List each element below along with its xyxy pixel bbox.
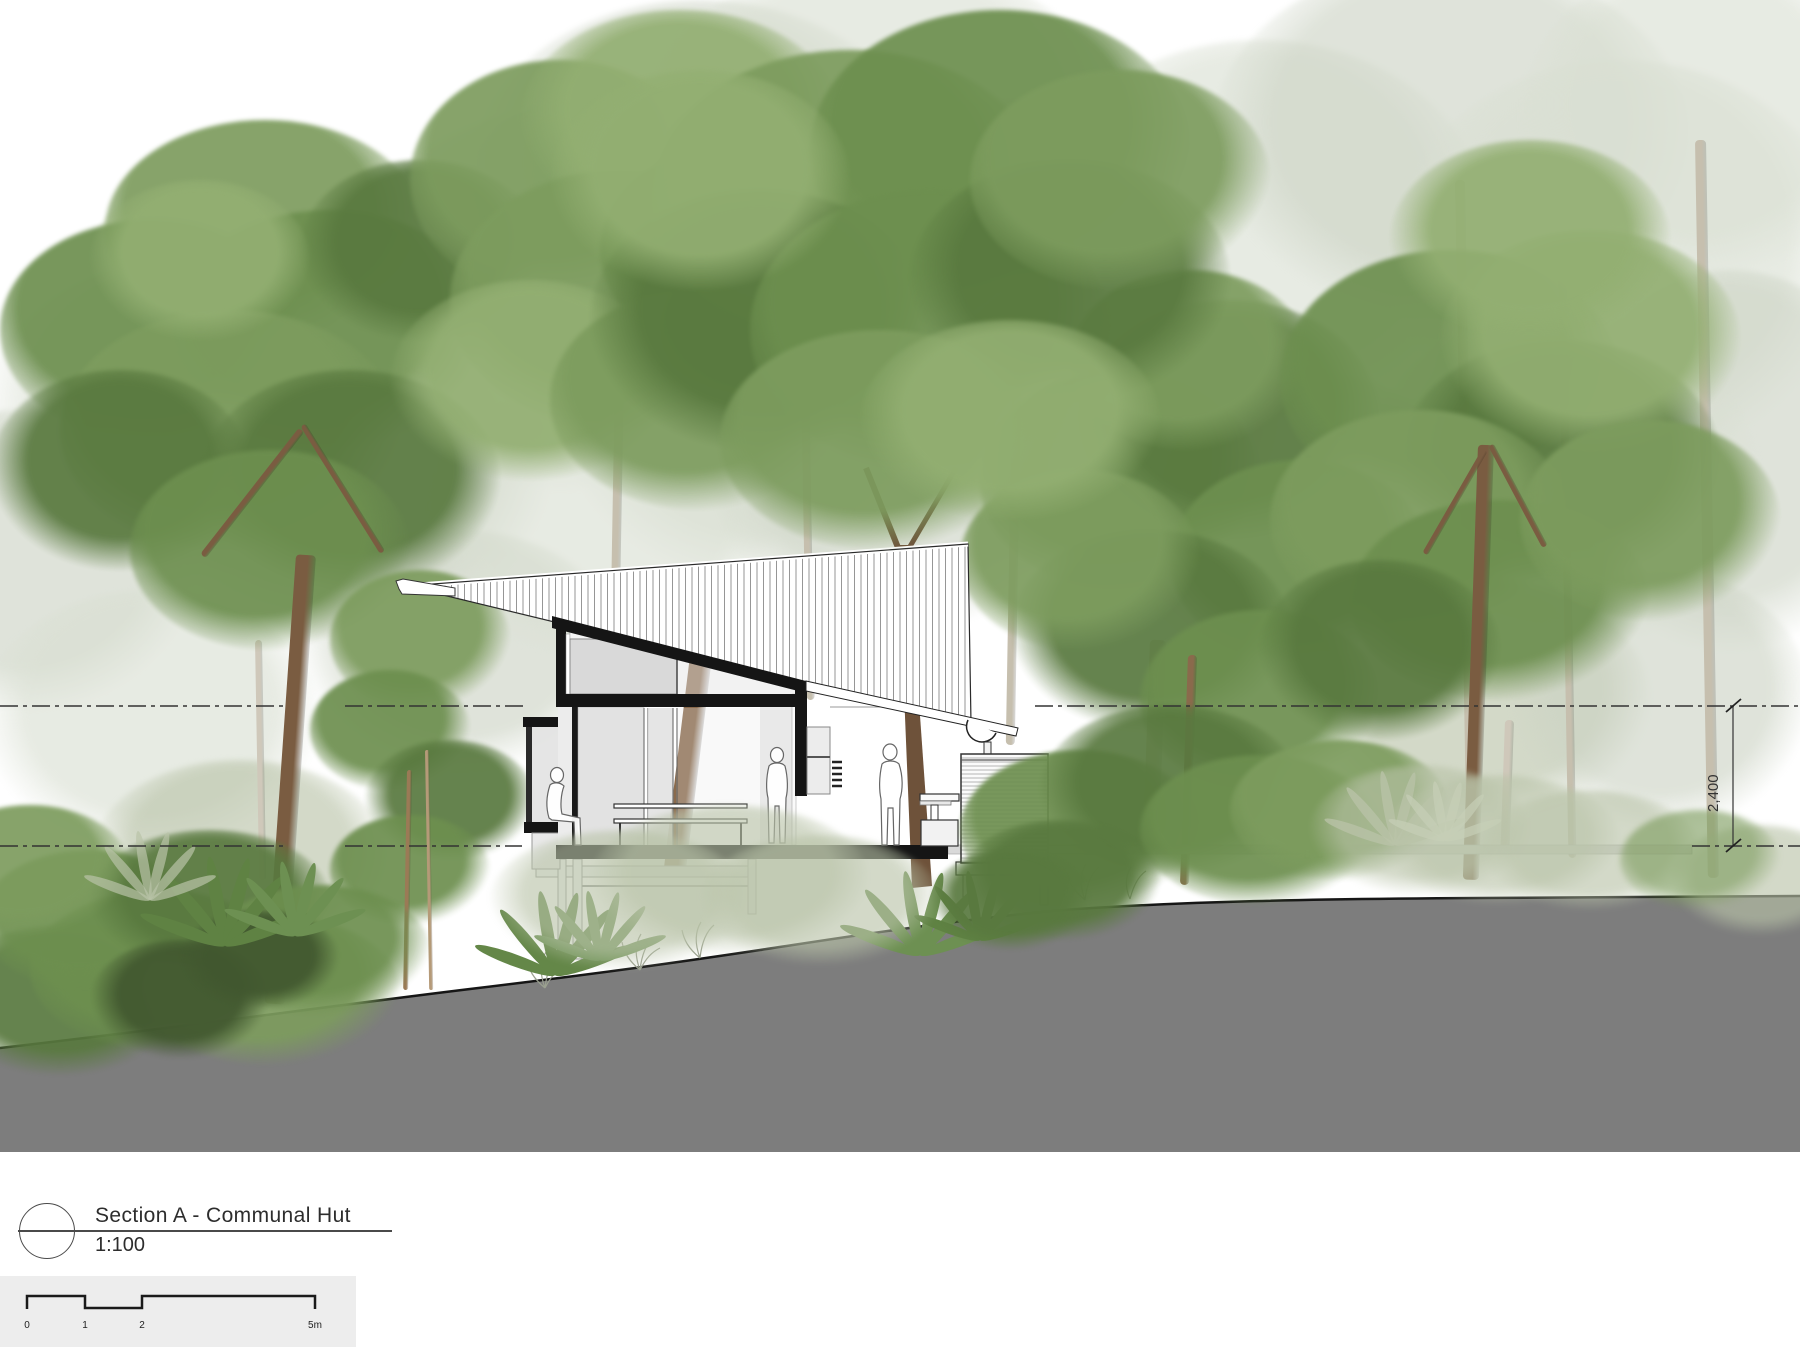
foliage-blob xyxy=(590,190,930,450)
foliage-blob xyxy=(470,0,930,360)
foliage-blob xyxy=(970,70,1270,290)
floor-level-band xyxy=(948,845,1692,854)
roof xyxy=(396,544,1018,757)
section-marker-circle xyxy=(19,1203,75,1259)
palm-frond xyxy=(913,911,982,944)
eave-gutter xyxy=(967,720,996,742)
palm-frond xyxy=(1430,780,1449,841)
palm-frond xyxy=(918,920,1002,960)
scale-bar: 0 1 2 5m xyxy=(20,1288,350,1338)
palm-frond xyxy=(148,871,217,904)
datum-lines xyxy=(0,706,1800,846)
palm-frond xyxy=(583,890,605,961)
palm-frond xyxy=(277,860,301,936)
palm-frond xyxy=(1377,770,1400,846)
foliage-blob xyxy=(0,850,200,990)
roof-eave xyxy=(806,681,1018,736)
glazed-wall xyxy=(558,694,796,846)
palm-frond xyxy=(551,903,604,963)
person-seated xyxy=(547,768,581,846)
foliage-blob xyxy=(90,830,330,970)
tree-trunk xyxy=(1180,655,1197,885)
person-standing-veranda xyxy=(880,744,903,845)
foliage-blob xyxy=(310,670,470,790)
foliage-blob xyxy=(1260,560,1500,740)
foliage-blob xyxy=(1380,775,1620,905)
foliage-blob xyxy=(710,330,1090,630)
foliage-blob xyxy=(330,570,510,710)
foliage-blob xyxy=(910,160,1230,400)
palm-frond xyxy=(1441,781,1465,841)
palm-frond xyxy=(899,870,926,956)
foliage-blob xyxy=(420,380,780,660)
foliage-blob xyxy=(1510,570,1800,830)
foliage-blob xyxy=(450,170,790,430)
ground-line xyxy=(0,896,1800,1048)
dimension-2400: 2,400 xyxy=(1705,699,1741,852)
background-foliage xyxy=(0,0,1800,1347)
palm-frond xyxy=(138,908,227,951)
foliage-blob xyxy=(90,940,270,1060)
scale-bar-label-1: 1 xyxy=(82,1320,88,1331)
floor-slab xyxy=(556,845,948,859)
foliage-blob xyxy=(1040,705,1300,875)
foliage-blob xyxy=(1280,250,1620,510)
palm-frond xyxy=(931,883,984,943)
palm-frond xyxy=(861,886,925,959)
foliage-blob xyxy=(860,320,1160,520)
palm-frond xyxy=(963,870,985,941)
palm-frond xyxy=(496,906,560,979)
palm-frond xyxy=(1391,784,1447,848)
palm-frond xyxy=(145,831,173,901)
palm-frond xyxy=(290,861,320,936)
palm-frond xyxy=(533,931,602,964)
foliage-blob xyxy=(1140,610,1380,790)
scale-bar-label-2: 2 xyxy=(139,1320,145,1331)
foliage-blob xyxy=(140,915,400,1065)
foliage-blob xyxy=(960,750,1200,910)
foliage-blob xyxy=(1440,230,1740,450)
person-walking-faded xyxy=(1305,799,1322,858)
foliage-blob xyxy=(1270,410,1570,630)
palm-frond xyxy=(1390,771,1419,846)
tree-trunk xyxy=(200,428,304,558)
foliage-blob xyxy=(600,140,900,360)
tree-trunk xyxy=(664,574,722,874)
title-block: Section A - Communal Hut 1:100 0 1 2 5m xyxy=(0,1190,480,1347)
foliage-blob xyxy=(0,590,320,850)
tree-trunk xyxy=(712,569,779,680)
hut-section xyxy=(396,544,1018,959)
palm-frond xyxy=(1387,815,1446,844)
foliage-blob xyxy=(1520,420,1780,620)
foliage-blob xyxy=(180,910,340,1010)
ground-terrain xyxy=(0,896,1800,1152)
scale-bar-label-5m: 5m xyxy=(308,1320,322,1331)
foliage-blob xyxy=(365,740,535,860)
foliage-blob xyxy=(560,260,960,580)
foliage-blob xyxy=(1350,500,1650,700)
foliage-blob xyxy=(930,850,1090,950)
foliage-blob xyxy=(0,410,200,710)
foliage-blob xyxy=(1030,40,1490,420)
palm-frond xyxy=(219,856,255,946)
foliage-blob xyxy=(0,925,180,1075)
foliage-blob xyxy=(1390,140,1670,340)
annotation-overlay: 2,400 xyxy=(0,0,1800,1347)
hut-section-linework xyxy=(0,0,1800,1347)
tree-trunk xyxy=(300,423,385,553)
palm-frond xyxy=(596,903,649,963)
palm-frond xyxy=(203,855,231,946)
palm-frond xyxy=(914,871,948,956)
palm-frond xyxy=(549,891,583,976)
section-drawing-canvas: 2,400 Section A - Communal Hut 1:100 0 1… xyxy=(0,0,1800,1347)
foliage-blob xyxy=(750,190,1110,470)
foliage-blob xyxy=(1120,370,1480,670)
foliage-blob xyxy=(90,180,310,340)
tree-trunk xyxy=(1143,640,1166,830)
foliage-blob xyxy=(960,820,1160,940)
foliage-blob xyxy=(720,330,1040,550)
foliage-blob xyxy=(0,805,130,935)
foliage-blob xyxy=(1010,530,1290,730)
scale-bar-label-0: 0 xyxy=(24,1320,30,1331)
foliage-blob xyxy=(790,100,1210,460)
downpipe xyxy=(984,742,991,757)
tree-trunk xyxy=(1488,444,1547,548)
foliage-blob xyxy=(300,160,540,340)
tree-trunk xyxy=(1558,260,1576,858)
foliage-blob xyxy=(1230,740,1450,880)
tree-trunk xyxy=(1463,445,1494,880)
water-tank xyxy=(956,754,1053,905)
palm-frond xyxy=(1323,815,1397,850)
foliage-blob xyxy=(650,50,1050,350)
foliage-blob xyxy=(105,120,425,340)
roof-section-cut xyxy=(552,616,806,693)
foliage-blob xyxy=(90,760,390,960)
foliage-blob xyxy=(1170,460,1430,660)
foliage-blob xyxy=(410,60,710,300)
foliage-blob xyxy=(1390,60,1800,460)
outdoor-counter xyxy=(920,794,959,846)
foliage-blob xyxy=(1620,810,1780,910)
palm-frond xyxy=(223,908,312,951)
foliage-blob xyxy=(0,260,380,580)
foreground-foliage xyxy=(0,0,1800,1347)
tree-trunk xyxy=(255,640,266,880)
drawing-scale: 1:100 xyxy=(95,1234,145,1257)
interior-table xyxy=(614,804,747,845)
bay-window xyxy=(523,717,568,869)
foliage-blob xyxy=(660,240,920,420)
palm-frond xyxy=(598,931,667,964)
tree-trunk xyxy=(608,200,627,790)
foliage-blob xyxy=(110,300,550,640)
foliage-blob xyxy=(1310,580,1650,820)
foliage-blob xyxy=(550,70,850,290)
tree-trunk xyxy=(800,320,815,700)
foliage-blob xyxy=(130,450,410,650)
tree-trunk xyxy=(631,573,710,683)
palm-frond xyxy=(976,883,1029,943)
tree-trunk xyxy=(1006,390,1021,745)
foliage-blob xyxy=(340,110,780,490)
foliage-blob xyxy=(1210,0,1690,320)
foliage-blob xyxy=(1670,825,1800,935)
palm-frond xyxy=(1393,815,1467,850)
palm-frond xyxy=(595,891,623,961)
foliage-blob xyxy=(330,815,490,925)
foliage-blob xyxy=(1360,310,1760,650)
foliage-blob xyxy=(980,370,1260,590)
palm-frond xyxy=(83,871,152,904)
palm-frond xyxy=(553,940,637,980)
foliage-blob xyxy=(1140,755,1380,905)
substructure-stilts xyxy=(536,859,756,959)
palm-frond xyxy=(291,874,348,939)
foliage-blob xyxy=(520,10,840,230)
tree-trunk xyxy=(425,750,433,990)
palm-frond xyxy=(975,871,1003,941)
tree-trunk xyxy=(403,770,412,990)
foliage-blob xyxy=(1070,270,1310,450)
palm-frond xyxy=(243,874,300,939)
foliage-blob xyxy=(200,370,500,590)
foliage-blob xyxy=(640,0,1120,300)
palm-frond xyxy=(223,904,297,940)
storage-wall xyxy=(795,686,842,796)
palm-frond xyxy=(838,920,922,960)
palm-frond xyxy=(1443,815,1502,844)
palm-frond xyxy=(1442,791,1487,843)
drawing-title: Section A - Communal Hut xyxy=(95,1204,351,1228)
foliage-blob xyxy=(1520,0,1800,280)
foreground-tree-trunk xyxy=(866,468,956,888)
foliage-blob xyxy=(1310,765,1530,895)
palm-frond xyxy=(220,872,288,949)
palm-frond xyxy=(101,843,154,903)
person-standing-inside xyxy=(767,748,788,844)
midground-trees xyxy=(0,0,1800,1347)
tree-trunk xyxy=(1500,720,1514,852)
foliage-blob xyxy=(960,470,1200,650)
palm-frond xyxy=(534,890,561,976)
foliage-blob xyxy=(300,530,620,770)
foliage-blob xyxy=(390,280,670,480)
palm-frond xyxy=(1343,784,1399,848)
tree-trunk xyxy=(1455,180,1477,858)
tree-trunk xyxy=(265,554,316,1004)
foliage-blob xyxy=(700,835,940,965)
palm-frond xyxy=(146,843,199,903)
foliage-blob xyxy=(1480,790,1700,910)
foliage-blob xyxy=(1400,340,1720,580)
palm-frond xyxy=(1403,791,1448,843)
lintel-beam xyxy=(556,694,806,707)
foliage-blob xyxy=(1560,270,1800,650)
tree-trunk xyxy=(1422,449,1487,556)
palm-frond xyxy=(978,911,1047,944)
palm-frond xyxy=(293,904,367,940)
palm-frond xyxy=(550,906,614,979)
palm-frond xyxy=(473,940,557,980)
foliage-blob xyxy=(60,310,400,550)
clerestory xyxy=(556,615,806,707)
foliage-blob xyxy=(30,890,290,1050)
roof-tip-gutter xyxy=(396,579,455,596)
foliage-blob xyxy=(0,220,300,440)
foliage-blob xyxy=(490,830,750,970)
foliage-blob xyxy=(1080,300,1380,540)
palm-frond xyxy=(162,872,230,949)
palm-frond xyxy=(915,886,979,959)
foliage-blob xyxy=(210,885,430,1015)
foliage-blob xyxy=(550,290,850,510)
palm-frond xyxy=(133,830,155,901)
foliage-blob xyxy=(900,260,1280,580)
foliage-blob xyxy=(0,370,250,570)
foliage-blob xyxy=(590,805,870,955)
tree-trunk xyxy=(1695,140,1719,878)
dimension-label: 2,400 xyxy=(1705,774,1722,812)
foliage-blob xyxy=(170,210,490,450)
people xyxy=(547,744,1322,858)
foliage-blob xyxy=(810,10,1190,290)
outline-grasses xyxy=(527,864,1146,988)
